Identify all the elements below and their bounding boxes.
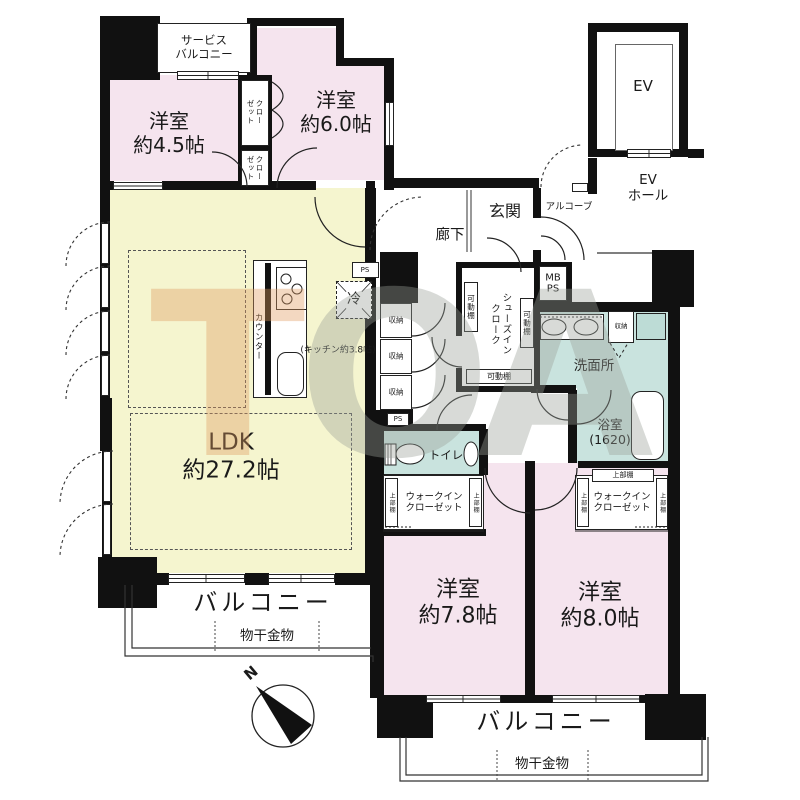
upper-shelf-label-top: 上部棚 bbox=[613, 471, 634, 479]
wall bbox=[377, 697, 433, 738]
storage-1-label: 収納 bbox=[389, 316, 404, 325]
window-west-4 bbox=[101, 355, 109, 396]
service-balcony-label: サービス バルコニー bbox=[175, 34, 232, 62]
wall bbox=[378, 529, 486, 536]
kitchen-size-label: (キッチン約3.8帖) bbox=[300, 346, 375, 357]
window-ldk-balcony-1 bbox=[168, 574, 245, 583]
wall bbox=[247, 18, 343, 26]
balcony-bottom-label: バルコニー bbox=[476, 708, 616, 737]
wall bbox=[245, 573, 269, 585]
washing-machine-space bbox=[636, 313, 666, 340]
wall bbox=[501, 695, 552, 703]
stove bbox=[276, 267, 307, 310]
alcove-window bbox=[572, 183, 588, 192]
window-room60-east bbox=[385, 102, 394, 146]
window-room80-balcony bbox=[552, 695, 640, 703]
bathtub bbox=[631, 391, 664, 460]
upper-shelf-label-2: 上部棚 bbox=[472, 493, 479, 514]
kitchen-counter bbox=[265, 263, 271, 395]
laundry-left-label: 物干金物 bbox=[240, 628, 294, 644]
window-west-6 bbox=[103, 504, 111, 555]
north-compass bbox=[252, 685, 314, 747]
room-60-label: 洋室 約6.0帖 bbox=[300, 88, 372, 136]
room-78-label: 洋室 約7.8帖 bbox=[419, 578, 498, 631]
meter-box-label: MB PS bbox=[545, 274, 561, 295]
window-west-2 bbox=[101, 267, 109, 308]
ev-label: EV bbox=[633, 77, 653, 95]
window-west-3 bbox=[101, 311, 109, 352]
movable-shelf-right-label: 可動棚 bbox=[523, 310, 532, 336]
window-west-1 bbox=[101, 223, 109, 264]
wic-left-label: ウォークイン クローゼット bbox=[405, 492, 462, 515]
upper-shelf-label-3: 上部棚 bbox=[579, 493, 586, 514]
floor-plan: サービス バルコニー 洋室 約4.5帖 クロー ゼット クロー ゼット 洋室 約… bbox=[0, 0, 800, 800]
upper-shelf-label-4: 上部棚 bbox=[658, 493, 665, 514]
wall bbox=[100, 80, 110, 222]
movable-shelf-left-label: 可動棚 bbox=[467, 294, 476, 320]
wall bbox=[370, 410, 384, 698]
bathroom-label: 浴室 (1620) bbox=[589, 417, 631, 447]
storage-2-label: 収納 bbox=[389, 352, 404, 361]
room-80-label: 洋室 約8.0帖 bbox=[561, 581, 640, 634]
wall bbox=[688, 149, 704, 158]
wall bbox=[100, 16, 160, 80]
window-room45-ldk bbox=[113, 182, 163, 190]
wall bbox=[525, 461, 535, 696]
north-label: N bbox=[240, 662, 261, 684]
ldk-label: LDK 約27.2帖 bbox=[182, 429, 279, 484]
shoes-in-cloak-label: シューズイン クローク bbox=[489, 293, 512, 356]
ldk-dining-zone bbox=[128, 250, 246, 408]
entrance-step-lines bbox=[467, 190, 471, 252]
refrigerator-label: 冷 bbox=[346, 292, 362, 309]
room-45-label: 洋室 約4.5帖 bbox=[133, 109, 205, 157]
elevator-door bbox=[627, 149, 671, 158]
pipe-space-1-label: PS bbox=[361, 266, 370, 274]
washroom-storage-label: 収納 bbox=[615, 323, 628, 331]
wall bbox=[533, 188, 541, 218]
pipe-space-2-label: PS bbox=[394, 415, 403, 423]
vanity-counter bbox=[540, 314, 604, 340]
kitchen-sink bbox=[277, 352, 304, 396]
washroom-label: 洗面所 bbox=[574, 358, 615, 374]
shoes-in-cloak-doorway bbox=[456, 336, 464, 368]
upper-shelf-label-1: 上部棚 bbox=[388, 493, 395, 514]
wall bbox=[98, 557, 157, 608]
ev-hall-label: EV ホール bbox=[628, 172, 669, 204]
storage-3-label: 収納 bbox=[389, 388, 404, 397]
wall bbox=[100, 398, 112, 451]
laundry-bottom-label: 物干金物 bbox=[515, 756, 569, 772]
wall bbox=[668, 305, 680, 697]
wall bbox=[568, 390, 577, 463]
wall bbox=[652, 250, 694, 307]
window-room78-balcony bbox=[426, 695, 501, 703]
closet-1-label: クロー ゼット bbox=[246, 99, 264, 125]
hallway-label: 廊下 bbox=[436, 227, 465, 244]
window-service-balcony bbox=[177, 71, 239, 80]
window-ldk-balcony-2 bbox=[268, 574, 335, 583]
entrance-label: 玄関 bbox=[489, 201, 521, 220]
counter-label: カウンター bbox=[253, 313, 263, 361]
wall bbox=[380, 252, 418, 303]
elevator-car bbox=[615, 44, 673, 151]
wic-right-label: ウォークイン クローゼット bbox=[593, 492, 650, 515]
movable-shelf-bottom-label: 可動棚 bbox=[487, 372, 511, 382]
wall bbox=[479, 429, 488, 475]
alcove-label: アルコーブ bbox=[546, 201, 593, 212]
wall bbox=[578, 461, 680, 468]
wall bbox=[394, 178, 539, 188]
window-west-5 bbox=[103, 451, 111, 502]
closet-2-label: クロー ゼット bbox=[246, 155, 264, 181]
balcony-left-label: バルコニー bbox=[193, 589, 333, 618]
wall bbox=[645, 694, 706, 740]
toilet-label: トイレ bbox=[429, 449, 464, 463]
wall bbox=[588, 158, 597, 194]
